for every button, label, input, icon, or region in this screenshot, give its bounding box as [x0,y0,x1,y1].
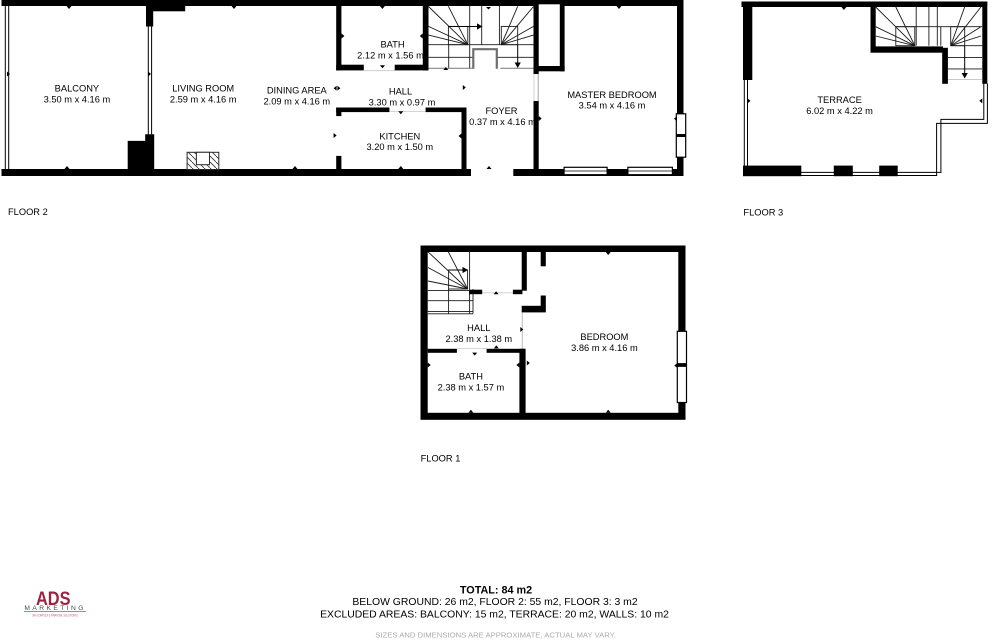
svg-text:2.38 m x 1.38 m: 2.38 m x 1.38 m [445,334,512,344]
svg-text:TERRACE: TERRACE [817,95,861,105]
svg-text:BATH: BATH [380,40,404,50]
svg-text:6.02 m x 4.22 m: 6.02 m x 4.22 m [806,106,873,116]
svg-text:KITCHEN: KITCHEN [379,131,420,141]
svg-text:FLOOR 2: FLOOR 2 [8,207,48,217]
svg-text:HALL: HALL [467,323,490,333]
svg-text:EXCLUDED AREAS: BALCONY: 15 m2: EXCLUDED AREAS: BALCONY: 15 m2, TERRACE:… [320,609,669,620]
svg-text:3.20 m x 1.50 m: 3.20 m x 1.50 m [366,142,433,152]
svg-text:3.86 m x 4.16 m: 3.86 m x 4.16 m [571,343,638,353]
svg-text:2.38 m x 1.57 m: 2.38 m x 1.57 m [438,382,505,392]
svg-text:HALL: HALL [389,87,412,97]
svg-text:FOYER: FOYER [485,106,517,116]
svg-text:DINING AREA: DINING AREA [267,86,328,96]
svg-text:BALCONY: BALCONY [55,84,99,94]
svg-text:BELOW GROUND: 26 m2, FLOOR 2:: BELOW GROUND: 26 m2, FLOOR 2: 55 m2, FLO… [352,597,637,608]
svg-text:BATH: BATH [459,371,483,381]
svg-text:BEDROOM: BEDROOM [580,332,628,342]
svg-text:3.54 m x 4.16 m: 3.54 m x 4.16 m [579,101,646,111]
svg-text:MASTER BEDROOM: MASTER BEDROOM [567,90,656,100]
svg-text:MARKETING: MARKETING [24,605,86,612]
svg-text:3.50 m x 4.16 m: 3.50 m x 4.16 m [44,95,111,105]
svg-text:SIZES AND DIMENSIONS ARE APPRO: SIZES AND DIMENSIONS ARE APPROXIMATE, AC… [375,630,616,639]
svg-text:FLOOR 3: FLOOR 3 [743,208,783,218]
svg-text:TOTAL: 84 m2: TOTAL: 84 m2 [460,584,532,596]
svg-text:FLOOR 1: FLOOR 1 [421,454,461,464]
svg-text:LIVING ROOM: LIVING ROOM [172,84,234,94]
svg-text:0.37 m x 4.16 m: 0.37 m x 4.16 m [469,117,536,127]
svg-text:| AN COMPLEX & FINANCIAL SOLUT: | AN COMPLEX & FINANCIAL SOLUTIONS | [32,614,78,618]
svg-text:2.12 m x 1.56 m: 2.12 m x 1.56 m [357,51,424,61]
svg-text:2.59 m x 4.16 m: 2.59 m x 4.16 m [170,95,237,105]
svg-text:3.30 m x 0.97 m: 3.30 m x 0.97 m [369,98,436,108]
svg-text:2.09 m x 4.16 m: 2.09 m x 4.16 m [263,97,330,107]
